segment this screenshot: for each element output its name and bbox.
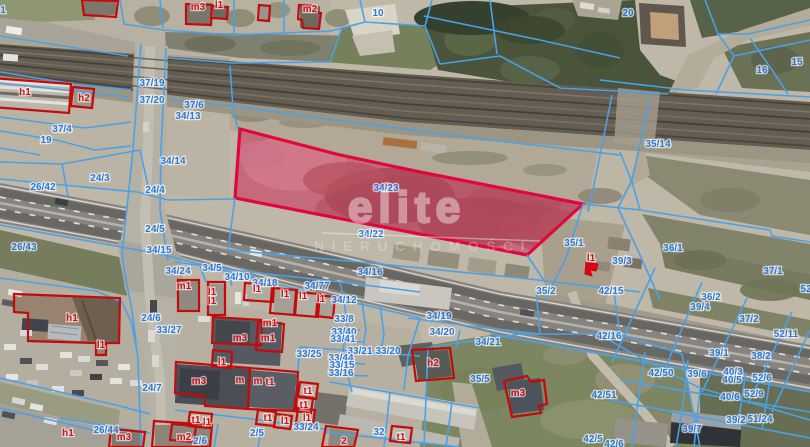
svg-text:26/43: 26/43: [11, 242, 36, 253]
svg-text:34/14: 34/14: [160, 156, 185, 167]
svg-text:15: 15: [791, 57, 803, 68]
svg-text:34/24: 34/24: [165, 266, 190, 277]
svg-text:37/1: 37/1: [763, 266, 783, 277]
svg-text:l1: l1: [299, 291, 308, 302]
svg-text:h1: h1: [19, 87, 31, 98]
svg-text:m2: m2: [177, 432, 192, 443]
svg-text:34/16: 34/16: [357, 267, 382, 278]
svg-text:24/5: 24/5: [145, 224, 165, 235]
svg-text:m: m: [236, 375, 245, 386]
svg-text:l1: l1: [215, 0, 224, 11]
svg-text:33/27: 33/27: [156, 325, 181, 336]
svg-text:m3: m3: [192, 376, 207, 387]
svg-text:l1: l1: [317, 294, 326, 305]
svg-text:24/6: 24/6: [141, 313, 161, 324]
svg-text:t1: t1: [304, 386, 313, 397]
svg-text:20: 20: [622, 8, 634, 19]
svg-text:l1: l1: [203, 417, 212, 428]
svg-text:m1: m1: [177, 281, 192, 292]
svg-text:h2: h2: [78, 93, 90, 104]
svg-text:33/16: 33/16: [328, 368, 353, 379]
svg-text:26/42: 26/42: [30, 182, 55, 193]
svg-text:10: 10: [372, 8, 384, 19]
svg-text:39/7: 39/7: [682, 424, 702, 435]
svg-text:36/1: 36/1: [663, 243, 683, 254]
svg-text:33/25: 33/25: [296, 349, 321, 360]
svg-text:h2: h2: [427, 358, 439, 369]
svg-text:33/8: 33/8: [334, 314, 354, 325]
svg-text:m: m: [254, 376, 263, 387]
svg-text:33/20: 33/20: [375, 346, 400, 357]
svg-text:34/13: 34/13: [175, 111, 200, 122]
svg-text:l1: l1: [253, 284, 262, 295]
svg-text:34/77: 34/77: [304, 281, 329, 292]
svg-text:1: 1: [0, 5, 6, 16]
svg-text:2: 2: [341, 436, 347, 447]
svg-text:39/4: 39/4: [690, 302, 710, 313]
svg-text:34/15: 34/15: [146, 245, 171, 256]
svg-text:m1: m1: [263, 318, 278, 329]
svg-text:51/24: 51/24: [747, 414, 772, 425]
svg-text:t1: t1: [264, 413, 273, 424]
svg-text:m3: m3: [233, 333, 248, 344]
svg-text:34/20: 34/20: [429, 327, 454, 338]
svg-text:h1: h1: [66, 313, 78, 324]
svg-text:l1: l1: [208, 296, 217, 307]
svg-text:l1: l1: [97, 340, 106, 351]
svg-text:42/50: 42/50: [648, 368, 673, 379]
svg-text:35/2: 35/2: [536, 286, 556, 297]
svg-text:19: 19: [40, 135, 52, 146]
svg-text:l1: l1: [303, 413, 312, 424]
svg-text:t1: t1: [192, 415, 201, 426]
svg-text:37/19: 37/19: [139, 78, 164, 89]
svg-text:h1: h1: [62, 428, 74, 439]
svg-text:m3: m3: [191, 2, 206, 13]
svg-text:24/7: 24/7: [142, 383, 162, 394]
svg-text:35/14: 35/14: [645, 139, 670, 150]
svg-text:t1: t1: [397, 432, 406, 443]
svg-text:52/9: 52/9: [744, 389, 764, 400]
svg-text:24/3: 24/3: [90, 173, 110, 184]
svg-text:2/6: 2/6: [193, 436, 207, 447]
svg-text:t1: t1: [300, 400, 309, 411]
svg-text:38/2: 38/2: [751, 351, 771, 362]
svg-text:42/16: 42/16: [596, 331, 621, 342]
svg-text:m3: m3: [511, 388, 526, 399]
svg-text:42/5: 42/5: [583, 434, 603, 445]
svg-text:NIERUCHOMOŚCI: NIERUCHOMOŚCI: [314, 237, 532, 254]
svg-text:34/12: 34/12: [331, 295, 356, 306]
svg-text:42/6: 42/6: [604, 439, 624, 447]
svg-text:39/1: 39/1: [709, 348, 729, 359]
svg-text:40/5: 40/5: [722, 375, 742, 386]
svg-text:35/5: 35/5: [470, 374, 490, 385]
svg-text:l1: l1: [587, 253, 596, 264]
svg-text:24/4: 24/4: [145, 185, 165, 196]
svg-text:t1: t1: [266, 377, 275, 388]
svg-text:52/6: 52/6: [752, 373, 772, 384]
svg-text:39/2: 39/2: [726, 415, 746, 426]
svg-text:m1: m1: [261, 333, 276, 344]
svg-text:37/6: 37/6: [184, 100, 204, 111]
svg-text:l1: l1: [218, 357, 227, 368]
svg-text:37/4: 37/4: [52, 124, 72, 135]
svg-text:34/10: 34/10: [224, 272, 249, 283]
svg-text:26/44: 26/44: [93, 425, 118, 436]
svg-text:33/41: 33/41: [330, 334, 355, 345]
svg-text:39/6: 39/6: [687, 369, 707, 380]
svg-text:34/19: 34/19: [426, 311, 451, 322]
svg-text:m3: m3: [117, 432, 132, 443]
svg-text:2/5: 2/5: [250, 428, 264, 439]
svg-text:40/6: 40/6: [720, 392, 740, 403]
svg-text:37/2: 37/2: [739, 314, 759, 325]
svg-text:34/5: 34/5: [202, 263, 222, 274]
svg-text:16: 16: [756, 65, 768, 76]
svg-text:42/51: 42/51: [591, 390, 616, 401]
svg-text:52/11: 52/11: [774, 329, 799, 340]
svg-text:l1: l1: [281, 289, 290, 300]
svg-text:52: 52: [800, 284, 810, 295]
svg-text:39/3: 39/3: [612, 256, 632, 267]
svg-text:32: 32: [373, 427, 385, 438]
svg-text:elite: elite: [348, 183, 466, 232]
svg-text:42/15: 42/15: [598, 286, 623, 297]
svg-text:m2: m2: [303, 4, 318, 15]
svg-text:l1: l1: [281, 416, 290, 427]
svg-text:34/21: 34/21: [475, 337, 500, 348]
svg-text:37/20: 37/20: [139, 95, 164, 106]
svg-text:35/1: 35/1: [564, 238, 584, 249]
